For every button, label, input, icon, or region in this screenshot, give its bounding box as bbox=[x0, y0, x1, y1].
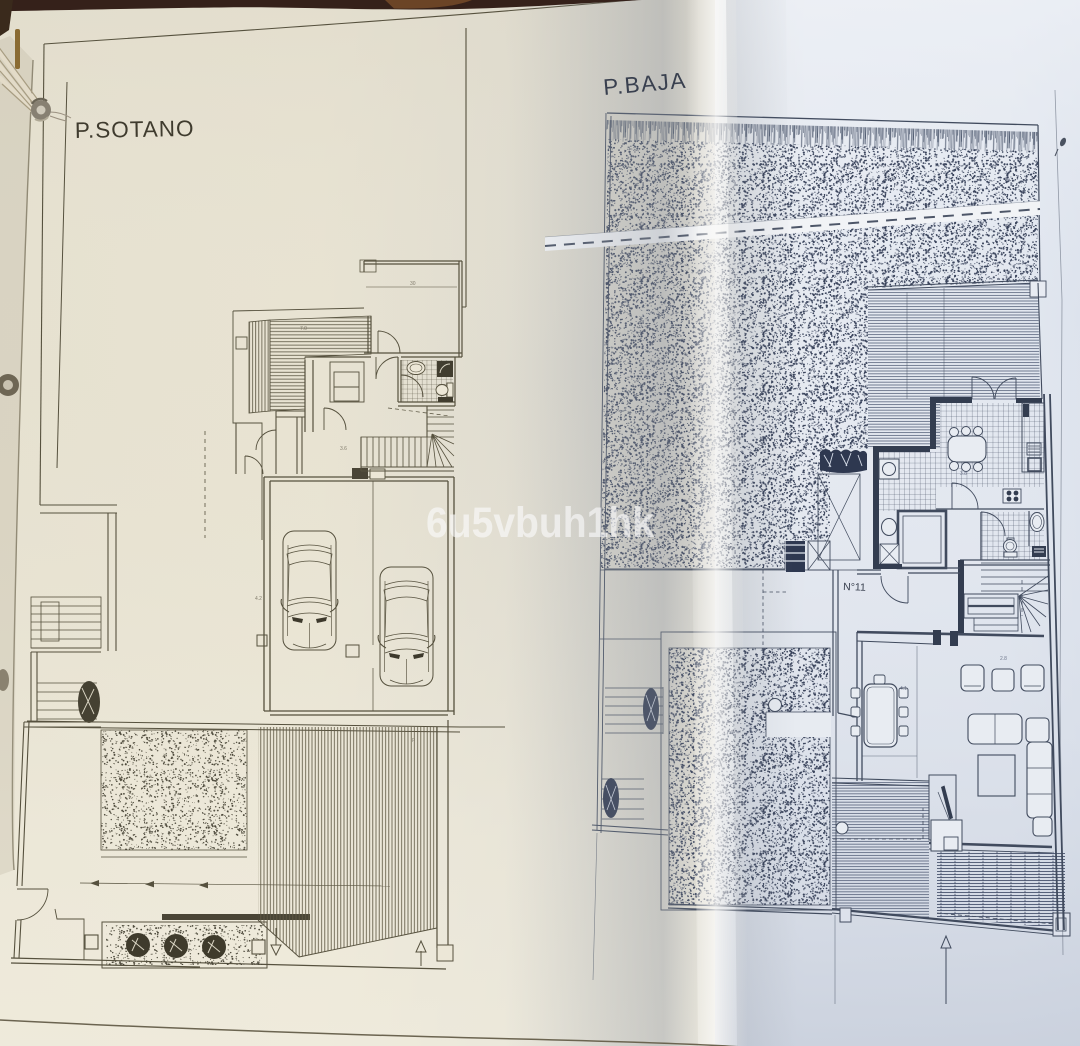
svg-text:P.SOTANO: P.SOTANO bbox=[75, 116, 195, 143]
svg-text:N°11: N°11 bbox=[843, 581, 866, 594]
svg-text:2.2: 2.2 bbox=[700, 484, 707, 490]
svg-text:4.2: 4.2 bbox=[255, 596, 262, 602]
svg-text:3.8: 3.8 bbox=[960, 471, 967, 477]
svg-text:4.1: 4.1 bbox=[900, 686, 907, 692]
svg-text:2.8: 2.8 bbox=[1000, 656, 1007, 662]
svg-text:p: p bbox=[412, 737, 415, 743]
svg-text:3.6: 3.6 bbox=[340, 446, 347, 452]
svg-text:6u5vbuh1hk: 6u5vbuh1hk bbox=[426, 500, 654, 547]
svg-text:5.6: 5.6 bbox=[680, 836, 687, 842]
svg-text:30: 30 bbox=[410, 281, 416, 287]
svg-text:7.0: 7.0 bbox=[300, 326, 307, 332]
